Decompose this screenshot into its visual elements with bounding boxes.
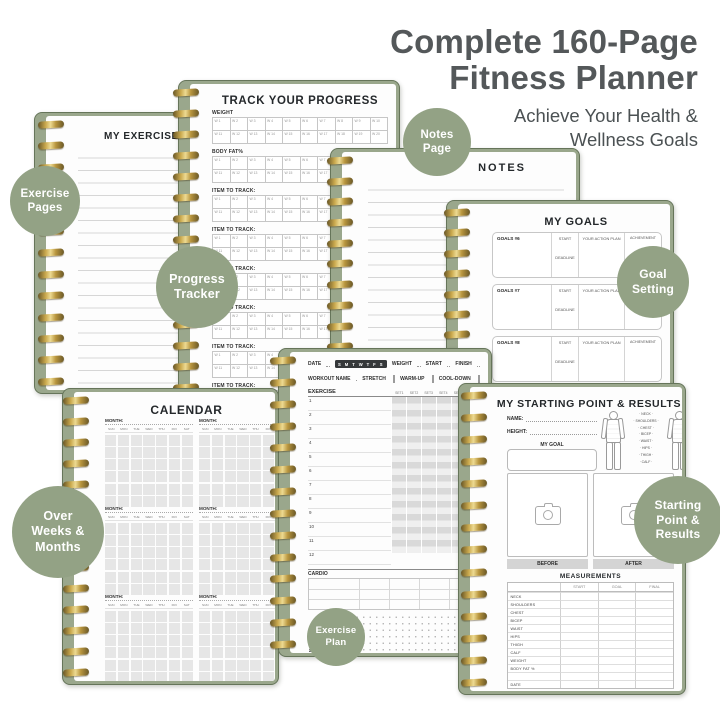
measurements-header-spacer xyxy=(508,583,560,591)
calendar-day-cell xyxy=(105,559,116,570)
weekday-label: WED xyxy=(237,603,250,607)
calendar-day-cell xyxy=(212,660,223,671)
week-cell: W 14 xyxy=(266,287,283,299)
cardio-header: CARDIO xyxy=(308,569,480,577)
calendar-day-cell xyxy=(263,535,274,546)
weekday-header: SUNMONTUEWEDTHUFRISAT xyxy=(105,601,193,609)
calendar-day-cell xyxy=(225,635,236,646)
calendar-day-cell xyxy=(237,547,248,558)
calendar-day-cell xyxy=(263,623,274,634)
calendar-day-cell xyxy=(143,447,154,458)
body-part-label: CHEST xyxy=(624,425,668,432)
calendar-day-cell xyxy=(182,435,193,446)
calendar-day-cell xyxy=(169,635,180,646)
weekday-label: TUE xyxy=(224,515,237,519)
calendar-day-cell xyxy=(199,535,210,546)
weekday-label: WED xyxy=(143,427,156,431)
cardio-cell xyxy=(359,599,389,609)
calendar-day-cell xyxy=(118,647,129,658)
calendar-day-cell xyxy=(143,660,154,671)
calendar-day-cell xyxy=(225,547,236,558)
badge-progress-tracker: Progress Tracker xyxy=(156,246,238,328)
stretch-checkbox xyxy=(393,375,395,383)
name-label: NAME: xyxy=(507,416,523,422)
calendar-day-cell xyxy=(118,484,129,495)
workout-header-row2: WORKOUT NAME STRETCH WARM-UP COOL-DOWN xyxy=(308,375,480,383)
calendar-day-cell xyxy=(225,447,236,458)
finish-field-line xyxy=(477,362,480,367)
week-cell: W 5 xyxy=(283,274,300,286)
calendar-day-cell xyxy=(212,459,223,470)
calendar-day-cell xyxy=(143,471,154,482)
calendar-day-cell xyxy=(250,559,261,570)
calendar-day-cell xyxy=(250,672,261,681)
week-cell: W 3 xyxy=(248,313,265,325)
track-section: WEIGHT W 1W 2W 3W 4W 5W 6W 7W 8W 9W 10W … xyxy=(212,110,388,144)
calendar-day-cell xyxy=(169,484,180,495)
calendar-day-cell xyxy=(237,635,248,646)
my-goals-title: MY GOALS xyxy=(458,216,670,228)
measurement-row-label-cell xyxy=(635,624,673,632)
measurement-row-label-cell xyxy=(635,648,673,656)
calendar-day-cell xyxy=(225,672,236,681)
weekday-label: SAT xyxy=(274,515,275,519)
measurement-row-label: WAIST xyxy=(508,624,560,632)
weekday-header: SUNMONTUEWEDTHUFRISAT xyxy=(105,425,193,433)
weight-field-line xyxy=(417,362,421,367)
weekday-label: THU xyxy=(249,427,262,431)
workout-header-row1: DATE S M T W T F S WEIGHT START FINISH xyxy=(308,360,480,368)
measurement-row-label-cell xyxy=(560,592,598,600)
exercise-row: 3 xyxy=(308,425,391,439)
calendar-day-cell xyxy=(225,435,236,446)
week-cell: W 6 xyxy=(301,313,318,325)
month-label: MONTH: xyxy=(105,506,193,513)
calendar-day-cell xyxy=(237,672,248,681)
calendar-day-cell xyxy=(182,459,193,470)
calendar-day-cell xyxy=(156,471,167,482)
calendar-day-cell xyxy=(105,672,116,681)
calendar-day-cell xyxy=(169,535,180,546)
calendar-day-cell xyxy=(169,572,180,583)
calendar-day-cell xyxy=(131,471,142,482)
measurement-row-label-cell xyxy=(560,680,598,688)
calendar-day-cell xyxy=(225,471,236,482)
goal-action-plan-label: YOUR ACTION PLAN xyxy=(578,233,624,277)
week-cell: W 12 xyxy=(231,326,248,338)
measurement-row-label-cell xyxy=(635,656,673,664)
calendar-day-cell xyxy=(182,572,193,583)
height-field: HEIGHT: xyxy=(507,429,597,435)
calendar-day-cell xyxy=(118,635,129,646)
week-cell: W 6 xyxy=(301,157,318,169)
calendar-day-cell xyxy=(199,459,210,470)
height-label: HEIGHT: xyxy=(507,429,527,435)
weekday-label: THU xyxy=(249,515,262,519)
calendar-day-cell xyxy=(118,623,129,634)
measurement-row-label-cell xyxy=(598,664,636,672)
calendar-day-cell xyxy=(212,572,223,583)
goal-start-label: START xyxy=(552,233,578,241)
measurement-header-label: FINAL xyxy=(635,583,673,591)
week-cell: W 13 xyxy=(248,287,265,299)
calendar-day-cell xyxy=(250,471,261,482)
calendar-day-cell xyxy=(199,547,210,558)
weekday-label: SUN xyxy=(105,427,118,431)
weekday-label: THU xyxy=(155,603,168,607)
week-cell: W 15 xyxy=(283,248,300,260)
weekday-label: FRI xyxy=(262,427,275,431)
calendar-day-cell xyxy=(250,623,261,634)
badge-exercise-plan: Exercise Plan xyxy=(307,608,365,666)
month-grid xyxy=(199,435,275,507)
weekday-label: FRI xyxy=(168,427,181,431)
calendar-day-cell xyxy=(182,647,193,658)
calendar-day-cell xyxy=(105,447,116,458)
calendar-day-cell xyxy=(199,447,210,458)
cooldown-label: COOL-DOWN xyxy=(439,376,471,382)
calendar-day-cell xyxy=(169,660,180,671)
calendar-day-cell xyxy=(105,660,116,671)
measurement-row-label: SHOULDERS xyxy=(508,600,560,608)
exercise-row: 1 xyxy=(308,397,391,411)
calendar-day-cell xyxy=(182,547,193,558)
calendar-day-cell xyxy=(182,623,193,634)
calendar-day-cell xyxy=(182,471,193,482)
body-part-label: SHOULDERS xyxy=(624,418,668,425)
goal-action-plan-label: YOUR ACTION PLAN xyxy=(578,285,624,329)
week-cell: W 2 xyxy=(231,157,248,169)
week-cell: W 5 xyxy=(283,118,300,130)
week-cell: W 14 xyxy=(266,326,283,338)
week-cell: W 1 xyxy=(213,352,230,364)
week-cell: W 5 xyxy=(283,196,300,208)
calendar-day-cell xyxy=(182,535,193,546)
calendar-day-cell xyxy=(250,572,261,583)
calendar-day-cell xyxy=(169,547,180,558)
calendar-day-cell xyxy=(212,647,223,658)
goal-deadline-label: DEADLINE xyxy=(552,356,578,364)
week-cell: W 4 xyxy=(266,157,283,169)
calendar-day-cell xyxy=(131,635,142,646)
measurement-row-label-cell xyxy=(560,672,598,680)
week-cell: W 11 xyxy=(213,131,230,143)
week-table: W 1W 2W 3W 4W 5W 6W 7W 8W 9W 10W 11W 12W… xyxy=(212,117,388,144)
goal-deadline-label: DEADLINE xyxy=(552,252,578,260)
calendar-day-cell xyxy=(131,484,142,495)
calendar-day-cell xyxy=(143,535,154,546)
weekday-label: SUN xyxy=(105,515,118,519)
week-cell: W 11 xyxy=(213,326,230,338)
photo-captions: BEFORE AFTER xyxy=(507,559,674,569)
measurement-row-label-cell xyxy=(560,648,598,656)
calendar-day-cell xyxy=(118,535,129,546)
week-cell: W 16 xyxy=(301,287,318,299)
calendar-day-cell xyxy=(169,471,180,482)
calendar-day-cell xyxy=(143,635,154,646)
week-cell: W 15 xyxy=(283,287,300,299)
measurement-row-label-cell xyxy=(635,592,673,600)
calendar-day-cell xyxy=(237,471,248,482)
calendar-day-cell xyxy=(118,435,129,446)
measurement-row-label: NECK xyxy=(508,592,560,600)
calendar-day-cell xyxy=(169,672,180,681)
goal-action-plan-label: YOUR ACTION PLAN xyxy=(578,337,624,381)
measurement-row-label-cell xyxy=(560,624,598,632)
calendar-day-cell xyxy=(250,459,261,470)
week-cell: W 15 xyxy=(283,131,300,143)
calendar-day-cell xyxy=(156,435,167,446)
calendar-month-block: MONTH: SUNMONTUEWEDTHUFRISAT xyxy=(105,594,193,681)
week-cell: W 15 xyxy=(283,170,300,182)
calendar-day-cell xyxy=(131,523,142,534)
month-grid xyxy=(105,523,193,595)
measurement-row-label-cell xyxy=(560,608,598,616)
weight-label: WEIGHT xyxy=(392,361,412,367)
measurement-row-label-cell xyxy=(598,648,636,656)
weekday-label: THU xyxy=(249,603,262,607)
calendar-day-cell xyxy=(156,623,167,634)
calendar-day-cell xyxy=(250,484,261,495)
weekday-label: FRI xyxy=(262,515,275,519)
week-cell: W 15 xyxy=(283,209,300,221)
measurement-row-label-cell xyxy=(598,616,636,624)
calendar-day-cell xyxy=(143,459,154,470)
measurement-header-label: GOAL xyxy=(598,583,636,591)
body-part-label: NECK xyxy=(624,411,668,418)
week-cell: W 11 xyxy=(213,170,230,182)
week-cell: W 16 xyxy=(301,131,318,143)
body-part-label: BICEP xyxy=(624,431,668,438)
measurements-table: STARTGOALFINAL NECKSHOULDERSCHESTBICEPWA… xyxy=(507,582,674,689)
cardio-cell xyxy=(389,589,419,599)
calendar-day-cell xyxy=(237,572,248,583)
goal-deadline-label: DEADLINE xyxy=(552,304,578,312)
week-cell: W 19 xyxy=(353,131,370,143)
badge-over-weeks-months: Over Weeks & Months xyxy=(12,486,104,578)
measurement-row-label-cell xyxy=(560,616,598,624)
calendar-day-cell xyxy=(105,572,116,583)
body-part-labels: NECKSHOULDERSCHESTBICEPWAISTHIPSTHIGHCAL… xyxy=(624,411,668,466)
calendar-day-cell xyxy=(105,535,116,546)
calendar-day-cell xyxy=(105,523,116,534)
calendar-day-cell xyxy=(118,471,129,482)
calendar-day-cell xyxy=(182,660,193,671)
month-grid xyxy=(199,611,275,681)
workout-name-field-line xyxy=(356,376,358,381)
calendar-day-cell xyxy=(156,647,167,658)
measurement-row-label-cell xyxy=(598,592,636,600)
calendar-day-cell xyxy=(212,484,223,495)
workout-name-label: WORKOUT NAME xyxy=(308,376,351,382)
exercise-row: 5 xyxy=(308,453,391,467)
calendar-day-cell xyxy=(250,660,261,671)
identity-fields: NAME: HEIGHT: MY GOAL xyxy=(507,416,597,471)
calendar-day-cell xyxy=(118,611,129,622)
measurement-row-label-cell xyxy=(635,608,673,616)
weekday-label: FRI xyxy=(168,603,181,607)
cardio-cell xyxy=(309,599,359,609)
set-header-label: SET2 xyxy=(407,391,422,395)
week-cell: W 13 xyxy=(248,170,265,182)
calendar-day-cell xyxy=(143,623,154,634)
fitness-planner-product-image: Complete 160-Page Fitness Planner Achiev… xyxy=(0,0,720,720)
before-photo-box xyxy=(507,473,588,557)
calendar-day-cell xyxy=(263,572,274,583)
calendar-day-cell xyxy=(156,459,167,470)
calendar-day-cell xyxy=(212,471,223,482)
week-cell: W 1 xyxy=(213,157,230,169)
week-cell: W 7 xyxy=(318,118,335,130)
exercise-row: 8 xyxy=(308,495,391,509)
week-cell: W 1 xyxy=(213,235,230,247)
measurement-row-label-cell xyxy=(560,640,598,648)
weekday-chip: S M T W T F S xyxy=(335,360,387,368)
week-cell: W 2 xyxy=(231,118,248,130)
calendar-day-cell xyxy=(131,459,142,470)
measurement-row-label-cell xyxy=(635,632,673,640)
calendar-day-cell xyxy=(199,647,210,658)
weekday-label: MON xyxy=(212,427,225,431)
calendar-day-cell xyxy=(212,611,223,622)
calendar-day-cell xyxy=(237,535,248,546)
calendar-day-cell xyxy=(182,635,193,646)
cardio-cell xyxy=(419,579,449,589)
week-cell: W 1 xyxy=(213,196,230,208)
name-field-line xyxy=(526,417,597,422)
week-cell: W 20 xyxy=(371,131,388,143)
calendar-day-cell xyxy=(199,471,210,482)
calendar-day-cell xyxy=(212,535,223,546)
set-header-label: SET4 xyxy=(436,391,451,395)
calendar-day-cell xyxy=(156,572,167,583)
week-cell: W 5 xyxy=(283,313,300,325)
week-cell: W 14 xyxy=(266,248,283,260)
measurement-row-label: BODY FAT % xyxy=(508,664,560,672)
cardio-cell xyxy=(359,579,389,589)
exercise-table: 123456789101112 xyxy=(308,397,480,565)
goal-start-label: START xyxy=(552,337,578,345)
calendar-day-cell xyxy=(237,447,248,458)
body-part-label: HIPS xyxy=(624,445,668,452)
week-cell: W 13 xyxy=(248,248,265,260)
calendar-month-block: MONTH: SUNMONTUEWEDTHUFRISAT xyxy=(105,506,193,595)
calendar-day-cell xyxy=(212,435,223,446)
calendar-day-cell xyxy=(156,635,167,646)
cardio-cell xyxy=(389,579,419,589)
measurement-row-label-cell xyxy=(598,608,636,616)
goal-dates: START DEADLINE xyxy=(551,337,578,381)
calendar-day-cell xyxy=(225,559,236,570)
calendar-day-cell xyxy=(237,623,248,634)
measurement-header-label: START xyxy=(560,583,598,591)
stretch-label: STRETCH xyxy=(362,376,386,382)
calendar-day-cell xyxy=(212,559,223,570)
measurement-row-label xyxy=(508,672,560,680)
track-progress-title: TRACK YOUR PROGRESS xyxy=(190,95,396,107)
weekday-label: WED xyxy=(237,427,250,431)
weekday-label: SAT xyxy=(180,427,193,431)
measurement-row-label-cell xyxy=(598,680,636,688)
calendar-day-cell xyxy=(212,623,223,634)
weekday-label: SAT xyxy=(180,515,193,519)
calendar-day-cell xyxy=(250,547,261,558)
week-cell: W 6 xyxy=(301,118,318,130)
week-cell: W 6 xyxy=(301,274,318,286)
calendar-day-cell xyxy=(199,484,210,495)
calendar-day-cell xyxy=(263,447,274,458)
calendar-day-cell xyxy=(131,623,142,634)
goal-dates: START DEADLINE xyxy=(551,285,578,329)
finish-label: FINISH xyxy=(455,361,471,367)
calendar-day-cell xyxy=(131,572,142,583)
week-cell: W 14 xyxy=(266,209,283,221)
calendar-day-cell xyxy=(263,647,274,658)
measurements-header: STARTGOALFINAL xyxy=(508,583,673,592)
calendar-day-cell xyxy=(199,635,210,646)
weekday-label: TUE xyxy=(130,427,143,431)
measurement-row-label-cell xyxy=(598,632,636,640)
date-label: DATE xyxy=(308,361,321,367)
set-header-label: SET1 xyxy=(392,391,407,395)
calendar-day-cell xyxy=(156,660,167,671)
calendar-day-cell xyxy=(118,523,129,534)
calendar-month-block: MONTH: SUNMONTUEWEDTHUFRISAT xyxy=(199,506,275,595)
badge-starting-point-results: Starting Point & Results xyxy=(634,476,720,564)
calendar-day-cell xyxy=(105,611,116,622)
week-cell: W 4 xyxy=(266,313,283,325)
week-cell: W 6 xyxy=(301,196,318,208)
subtitle-line1: Achieve Your Health & xyxy=(514,105,698,126)
calendar-day-cell xyxy=(182,523,193,534)
week-cell: W 4 xyxy=(266,118,283,130)
calendar-day-cell xyxy=(156,523,167,534)
week-cell: W 2 xyxy=(231,352,248,364)
week-cell: W 13 xyxy=(248,365,265,377)
calendar-day-cell xyxy=(143,672,154,681)
month-label: MONTH: xyxy=(199,594,275,601)
calendar-day-cell xyxy=(237,435,248,446)
calendar-day-cell xyxy=(118,559,129,570)
calendar-day-cell xyxy=(131,672,142,681)
calendar-day-cell xyxy=(199,623,210,634)
calendar-day-cell xyxy=(225,572,236,583)
month-label: MONTH: xyxy=(105,594,193,601)
calendar-day-cell xyxy=(131,535,142,546)
set-header-label: SET3 xyxy=(421,391,436,395)
measurement-row-label: THIGH xyxy=(508,640,560,648)
calendar-day-cell xyxy=(169,611,180,622)
exercise-row: 2 xyxy=(308,411,391,425)
calendar-day-cell xyxy=(182,447,193,458)
calendar-day-cell xyxy=(131,559,142,570)
calendar-day-cell xyxy=(199,660,210,671)
measurement-row-label-cell xyxy=(635,672,673,680)
measurement-row-label-cell xyxy=(635,680,673,688)
measurement-row-label-cell xyxy=(598,600,636,608)
week-cell: W 11 xyxy=(213,209,230,221)
calendar-day-cell xyxy=(131,435,142,446)
calendar-day-cell xyxy=(199,611,210,622)
weekday-label: SUN xyxy=(199,427,212,431)
cardio-label: CARDIO xyxy=(308,571,358,577)
week-cell: W 17 xyxy=(318,131,335,143)
week-cell: W 14 xyxy=(266,131,283,143)
date-field-line xyxy=(326,362,330,367)
calendar-day-cell xyxy=(237,484,248,495)
body-part-label: CALF xyxy=(624,459,668,466)
cardio-cell xyxy=(309,579,359,589)
